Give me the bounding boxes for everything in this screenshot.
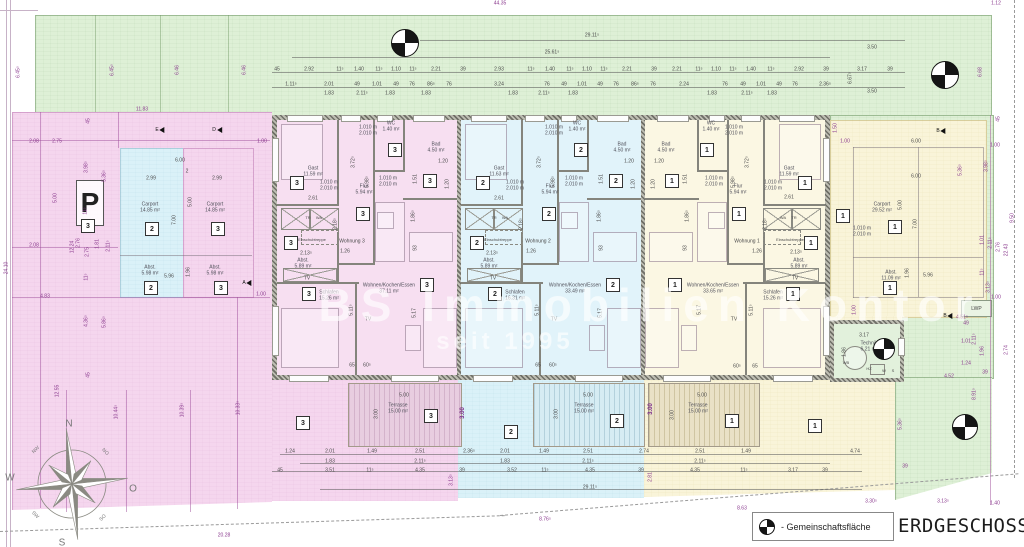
- dim-label: 44.35: [494, 2, 507, 7]
- interior-wall: [697, 120, 699, 172]
- dim-label: 3.00: [460, 407, 466, 419]
- dim-label: 3.98⁵: [985, 160, 990, 172]
- room-label: Schlafen15.26 m²: [319, 290, 339, 302]
- dim-label: 1.83: [500, 460, 510, 465]
- dim-label: Einschubtreppe: [298, 238, 326, 242]
- dim-label: 1.00: [840, 140, 850, 145]
- unit-number-marker: 3: [284, 236, 298, 250]
- dim-label: 76: [446, 83, 452, 88]
- dim-label: 45: [997, 116, 1002, 122]
- dim-label: 1.01: [372, 83, 382, 88]
- dim-label: 1.40: [990, 502, 1000, 507]
- unit-number-marker: 1: [668, 278, 682, 292]
- dim-label: 6.00: [911, 175, 921, 180]
- carport-right-edge-line: [853, 147, 854, 298]
- dim-label: 3.00: [375, 409, 380, 419]
- terrace-door: [663, 375, 711, 382]
- dim-label: 11.83: [136, 108, 148, 113]
- dim-label: 2.61: [494, 197, 504, 202]
- window: [525, 115, 545, 122]
- room-label: 1.010 m2.010 m: [379, 176, 397, 188]
- apartment-unit-2: [461, 120, 641, 375]
- dim-label: 2.01: [500, 450, 510, 455]
- unit-number-marker: 2: [574, 143, 588, 157]
- dim-label: 2.11⁵: [538, 92, 549, 97]
- dim-label: 2.92: [304, 68, 314, 73]
- sheet-corner-line: [0, 10, 38, 11]
- dim-label: 2.99: [212, 177, 222, 182]
- unit-number-marker: 1: [836, 209, 850, 223]
- dim-label: 11⁵: [729, 68, 736, 73]
- dim-label: 3.13⁵: [987, 281, 992, 293]
- dim-label: HZ: [866, 367, 871, 371]
- dim-label: 3.51: [325, 469, 335, 474]
- section-marker: E: [155, 127, 164, 133]
- dim-label: 6.67⁵: [849, 72, 854, 84]
- dim-label: 11⁵: [409, 68, 416, 73]
- communal-green-area-bottom-right: [895, 377, 994, 507]
- interior-wall: [557, 170, 589, 172]
- dim-label: 4.52: [944, 375, 954, 380]
- room-label: Abst.5.89 m²: [295, 258, 312, 270]
- terrace-door: [289, 375, 329, 382]
- dim-label: 3.13⁵: [937, 500, 949, 505]
- dim-label: TV: [551, 318, 557, 323]
- unit-number-marker: 2: [470, 236, 484, 250]
- dim-label: 5.11⁵: [750, 304, 755, 315]
- dim-label: 93: [414, 245, 419, 251]
- dim-label: 49: [776, 83, 782, 88]
- dim-label: 11⁵: [84, 207, 89, 214]
- dim-label: 1.83: [324, 92, 334, 97]
- interior-wall: [745, 282, 747, 375]
- dim-label: 5.17: [698, 305, 703, 315]
- survey-marker-icon: [391, 29, 419, 57]
- compass-n-label: N: [65, 419, 72, 430]
- dim-label: 6.46: [243, 65, 248, 75]
- interior-wall: [727, 263, 765, 265]
- dim-label: 2.11⁵: [356, 92, 367, 97]
- dim-label: 9.50: [1011, 213, 1016, 223]
- dim-label: 1.24: [961, 362, 971, 367]
- dim-label: 6.45⁵: [111, 64, 116, 76]
- unit-plan: [461, 120, 641, 375]
- dim-label: 7.00: [914, 219, 919, 229]
- section-marker: B: [936, 128, 945, 134]
- dim-label: 2.21: [672, 68, 682, 73]
- interior-wall: [521, 263, 559, 265]
- dim-label: 25.61⁵: [545, 51, 560, 56]
- dimension-line: [190, 390, 191, 512]
- dim-label: 5.36⁵: [899, 418, 904, 430]
- dim-label: 1.10: [582, 68, 592, 73]
- dim-label: 1.96: [906, 268, 911, 278]
- unit-number-marker: 3: [420, 278, 434, 292]
- dim-label: 8.76⁵: [539, 518, 551, 523]
- room-label: Carport14.85 m²: [205, 202, 225, 214]
- room-label: 1.010 m2.010 m: [320, 180, 338, 192]
- room-label: Terrasse15.00 m²: [574, 403, 594, 415]
- interior-wall: [697, 170, 729, 172]
- dim-label: 1.50: [834, 123, 839, 133]
- room-label: 1.010 m2.010 m: [545, 125, 563, 137]
- dim-label: 1.83: [707, 92, 717, 97]
- compass-star: [5, 412, 140, 547]
- dim-label: 1.51: [414, 174, 419, 184]
- dim-label: 1.51: [600, 174, 605, 184]
- dim-label: 65: [752, 365, 758, 370]
- dim-label: 11⁵: [85, 273, 90, 280]
- dim-label: 76: [650, 83, 656, 88]
- window: [287, 115, 323, 122]
- dim-label: 5.11⁵: [350, 304, 355, 315]
- dim-label: 5.00: [697, 394, 707, 399]
- room-label: 1.010 m2.010 m: [725, 125, 743, 137]
- dim-label: Wohnung 3: [339, 240, 364, 245]
- room-label: Abst.5.98 m²: [207, 265, 224, 277]
- legend-label: - Gemeinschaftsfläche: [781, 522, 871, 532]
- dim-label: 1.40: [545, 68, 555, 73]
- dim-label: 3.00: [555, 409, 560, 419]
- window: [657, 115, 689, 122]
- dim-label: 3.52: [507, 469, 517, 474]
- dim-label: TV: [304, 277, 310, 282]
- dim-label: 4.36⁵: [85, 315, 90, 327]
- dim-label: 2.13⁵: [790, 251, 802, 256]
- interior-wall: [277, 282, 359, 284]
- dim-label: 2.75: [52, 140, 62, 145]
- furniture: [559, 202, 589, 262]
- dim-label: 39: [823, 68, 829, 73]
- terrace-door: [575, 375, 623, 382]
- furniture: [645, 308, 679, 368]
- dim-label: 5.00: [583, 394, 593, 399]
- dim-label: 49: [354, 83, 360, 88]
- room-label: Flur5.94 m²: [730, 184, 747, 196]
- dim-label: 2.21: [622, 68, 632, 73]
- interior-wall: [521, 120, 523, 206]
- dim-label: 3.50: [867, 90, 877, 95]
- dim-label: TV: [792, 277, 798, 282]
- dimension-line: [272, 471, 862, 472]
- unit-number-marker: 1: [798, 176, 812, 190]
- dim-label: Einschubtreppe: [484, 238, 512, 242]
- dim-label: 2.13⁵: [300, 252, 312, 257]
- dim-label: 2: [186, 170, 189, 175]
- dim-label: 11⁵: [336, 68, 343, 73]
- dim-label: 1.01: [961, 340, 971, 345]
- dim-label: 1.26: [752, 250, 762, 255]
- dim-label: 2.11⁵: [107, 240, 112, 251]
- dim-label: 8.91⁵: [973, 388, 978, 400]
- dim-label: 1.00: [256, 293, 266, 298]
- dim-label: Einschubtreppe: [776, 238, 804, 242]
- dim-label: 12.55: [56, 385, 61, 398]
- dimension-line: [272, 87, 905, 88]
- dim-label: 5.96: [164, 275, 174, 280]
- unit-plan: [277, 120, 457, 375]
- room-label: WC1.40 m²: [703, 121, 720, 133]
- dim-label: Wohnung 2: [525, 240, 550, 245]
- dim-label: 2.21: [431, 68, 441, 73]
- carport-right-bottom-line: [853, 297, 983, 298]
- room-label: Abst.5.89 m²: [791, 258, 808, 270]
- unit-number-marker: 3: [388, 143, 402, 157]
- dim-label: 2.75: [86, 247, 91, 257]
- side-window: [823, 306, 830, 356]
- room-label: Gast11.59 m²: [303, 166, 322, 178]
- room-label: Wohnen/Kochen/Essen33.65 m²: [687, 283, 739, 295]
- dim-label: 1.83: [421, 92, 431, 97]
- dim-label: 3.00: [648, 403, 654, 415]
- dim-label: 2.01: [325, 450, 335, 455]
- page-title: ERDGESCHOSS: [898, 515, 1022, 537]
- dim-label: 2.11⁵: [582, 460, 593, 465]
- dim-label: 10.33⁵: [237, 401, 242, 416]
- dim-label: 1.20: [632, 179, 637, 189]
- dim-label: 2.61: [784, 196, 794, 201]
- section-letter: D: [212, 127, 216, 133]
- room-label: 1.010 m2.010 m: [853, 226, 871, 238]
- room-label: 1.010 m2.010 m: [506, 180, 524, 192]
- unit-plan: [645, 120, 825, 375]
- dim-label: 1.00: [853, 305, 858, 315]
- dim-label: 5.96: [923, 274, 933, 279]
- dim-label: 3.00: [671, 410, 676, 420]
- dim-label: 39: [982, 371, 988, 376]
- room-label: Flur5.94 m²: [542, 184, 559, 196]
- dim-label: 2.51: [695, 450, 705, 455]
- dim-label: 1.00: [257, 140, 267, 145]
- dim-label: 39: [902, 465, 908, 470]
- dim-label: 86⁵: [427, 83, 435, 88]
- dim-label: 1.24: [285, 450, 295, 455]
- room-label: Bad4.50 m²: [658, 142, 675, 154]
- dim-label: 3.17: [859, 334, 869, 339]
- dim-label: 60⁵: [363, 364, 371, 369]
- dim-label: 1.86⁵: [686, 210, 691, 222]
- site-boundary-dashed-right: [1014, 0, 1015, 478]
- section-marker: A: [242, 280, 251, 286]
- unit-number-marker: 1: [700, 143, 714, 157]
- building-outline: [272, 115, 830, 380]
- dim-label: 11⁵: [740, 469, 747, 474]
- dim-label: 2.74: [1005, 345, 1010, 355]
- dim-label: 49: [561, 83, 567, 88]
- dim-label: WA: [502, 216, 508, 220]
- survey-marker-icon: [931, 61, 959, 89]
- section-letter: E: [155, 127, 158, 133]
- interior-wall: [337, 120, 339, 206]
- furniture: [375, 202, 405, 262]
- window: [741, 115, 761, 122]
- furniture: [681, 325, 697, 351]
- dim-label: 2.81: [649, 472, 654, 482]
- section-arrow-icon: [217, 127, 222, 133]
- legend-box: - Gemeinschaftsfläche: [752, 512, 894, 541]
- dim-label: TR: [491, 216, 496, 220]
- dim-label: 2.76: [997, 242, 1002, 252]
- dim-label: 1.40: [746, 68, 756, 73]
- furniture: [763, 308, 821, 368]
- unit-number-marker: 3: [296, 416, 310, 430]
- dim-label: 76: [613, 83, 619, 88]
- interior-wall: [403, 120, 405, 172]
- dim-label: 39: [638, 469, 644, 474]
- dim-label: 2.11⁵: [989, 237, 994, 248]
- furniture: [281, 308, 339, 368]
- compass-o-label: O: [129, 484, 137, 495]
- room-label: Abst.5.89 m²: [481, 258, 498, 270]
- dim-label: 49: [393, 83, 399, 88]
- dim-label: 1.20: [654, 160, 664, 165]
- dim-label: 39: [822, 469, 828, 474]
- room-label: 1.010 m2.010 m: [359, 125, 377, 137]
- dimension-line: [12, 140, 270, 141]
- room-label: 1.010 m2.010 m: [705, 176, 723, 188]
- dim-label: 11⁵: [366, 469, 373, 474]
- dim-label: S: [892, 369, 895, 373]
- dim-label: 76: [544, 83, 550, 88]
- dim-label: 3.17: [788, 469, 798, 474]
- dim-label: 39: [651, 68, 657, 73]
- dim-label: 5.36⁵: [959, 164, 964, 176]
- dim-label: 1.96: [187, 267, 192, 277]
- dimension-line: [292, 57, 830, 58]
- dim-label: 39: [460, 68, 466, 73]
- window: [597, 115, 629, 122]
- dim-label: 2.99: [146, 177, 156, 182]
- interior-wall: [539, 282, 541, 375]
- dim-label: 4.35: [690, 469, 700, 474]
- dim-label: 3.72⁵: [538, 156, 543, 168]
- unit-number-marker: 1: [732, 207, 746, 221]
- survey-marker-icon: [952, 414, 978, 440]
- room-label: WC1.40 m²: [383, 121, 400, 133]
- technik-door: [898, 338, 905, 356]
- dim-label: 39: [887, 68, 893, 73]
- terrace-door: [391, 375, 439, 382]
- dim-label: 45: [274, 68, 280, 73]
- room-label: Bad4.50 m²: [614, 142, 631, 154]
- interior-wall: [763, 120, 765, 206]
- dimension-line: [420, 40, 905, 41]
- unit-number-marker: 1: [808, 419, 822, 433]
- window: [779, 115, 815, 122]
- room-label: Schlafen15.26 m²: [763, 290, 783, 302]
- dim-label: 2.18⁵: [334, 218, 339, 230]
- unit-number-marker: 3: [81, 219, 95, 233]
- dim-label: 1.83: [767, 92, 777, 97]
- dim-label: 4.74: [850, 450, 860, 455]
- dim-label: 4.35: [585, 469, 595, 474]
- unit-number-marker: 1: [786, 287, 800, 301]
- dimension-line: [300, 463, 830, 464]
- dim-label: 2.11⁵: [741, 92, 752, 97]
- dim-label: 1.83: [508, 92, 518, 97]
- dim-label: 2.36⁵: [463, 450, 475, 455]
- dim-label: W: [882, 369, 886, 373]
- dim-label: 2.74: [639, 450, 649, 455]
- dim-label: 1.86⁵: [598, 210, 603, 222]
- dim-label: 5.86⁵: [103, 316, 108, 328]
- interior-wall: [373, 170, 405, 172]
- dim-label: 1.26: [526, 250, 536, 255]
- furniture: [607, 308, 641, 368]
- dim-label: 1.86⁵: [412, 210, 417, 222]
- room-label: 1.010 m2.010 m: [764, 180, 782, 192]
- dim-label: 3.30⁵: [865, 500, 877, 505]
- dimension-line: [160, 15, 161, 112]
- dim-label: 5.36⁵: [103, 170, 108, 182]
- compass-rose: N O S W NO NW SO SW: [5, 412, 140, 547]
- section-arrow-icon: [941, 128, 946, 134]
- side-window: [272, 306, 279, 356]
- dim-label: 49: [963, 322, 969, 327]
- unit-number-marker: 2: [610, 414, 624, 428]
- unit-number-marker: 3: [290, 176, 304, 190]
- unit-number-marker: 1: [888, 220, 902, 234]
- dim-label: 11⁵: [695, 68, 702, 73]
- dim-label: 6.45⁵: [17, 66, 22, 78]
- dim-label: 1.10: [391, 68, 401, 73]
- interior-wall: [461, 282, 543, 284]
- dimension-line: [990, 115, 991, 505]
- terrace-door: [773, 375, 813, 382]
- dim-label: Wohnung 1: [734, 240, 759, 245]
- interior-wall: [403, 198, 457, 200]
- dim-label: 2.51: [415, 450, 425, 455]
- room-label: Flur5.94 m²: [356, 184, 373, 196]
- dim-label: 86⁵: [631, 83, 639, 88]
- dim-label: 93: [600, 245, 605, 251]
- dim-label: TV: [731, 318, 737, 323]
- dim-label: 1.20: [624, 160, 634, 165]
- furniture: [377, 212, 394, 229]
- unit-number-marker: 2: [542, 207, 556, 221]
- dim-label: 93: [684, 245, 689, 251]
- dim-label: 10.39⁵: [181, 403, 186, 418]
- dim-label: 2.13⁵: [486, 252, 498, 257]
- dim-label: TV: [365, 318, 371, 323]
- dim-label: 4.35: [415, 469, 425, 474]
- gemeinschaftsflaeche-icon: [759, 519, 775, 535]
- dim-label: 2.92: [794, 68, 804, 73]
- dim-label: 2.08: [29, 140, 39, 145]
- dim-label: 1.81: [96, 239, 101, 249]
- apartment-unit-1: [645, 120, 825, 375]
- interior-wall: [645, 198, 699, 200]
- dim-label: 2.18⁵: [764, 218, 769, 230]
- dim-label: 1.83: [568, 92, 578, 97]
- floor-plan-sheet: P LWP 44.3529.11⁵25.61⁵3.503.503.17396.6…: [0, 0, 1024, 547]
- interior-wall: [587, 198, 641, 200]
- room-label: Bad4.50 m²: [428, 142, 445, 154]
- unit-number-marker: 1: [804, 236, 818, 250]
- dim-label: 1.51: [684, 174, 689, 184]
- dim-label: 76: [722, 83, 728, 88]
- dim-label: 11⁵: [375, 68, 382, 73]
- side-window: [272, 138, 279, 182]
- dim-label: 2.51: [583, 450, 593, 455]
- dim-label: 60⁵: [733, 365, 741, 370]
- unit-number-marker: 1: [883, 281, 897, 295]
- furniture: [561, 212, 578, 229]
- unit-number-marker: 3: [424, 409, 438, 423]
- survey-marker-icon: [873, 338, 895, 360]
- dim-label: 1.49: [367, 450, 377, 455]
- room-label: Terrasse15.00 m²: [388, 403, 408, 415]
